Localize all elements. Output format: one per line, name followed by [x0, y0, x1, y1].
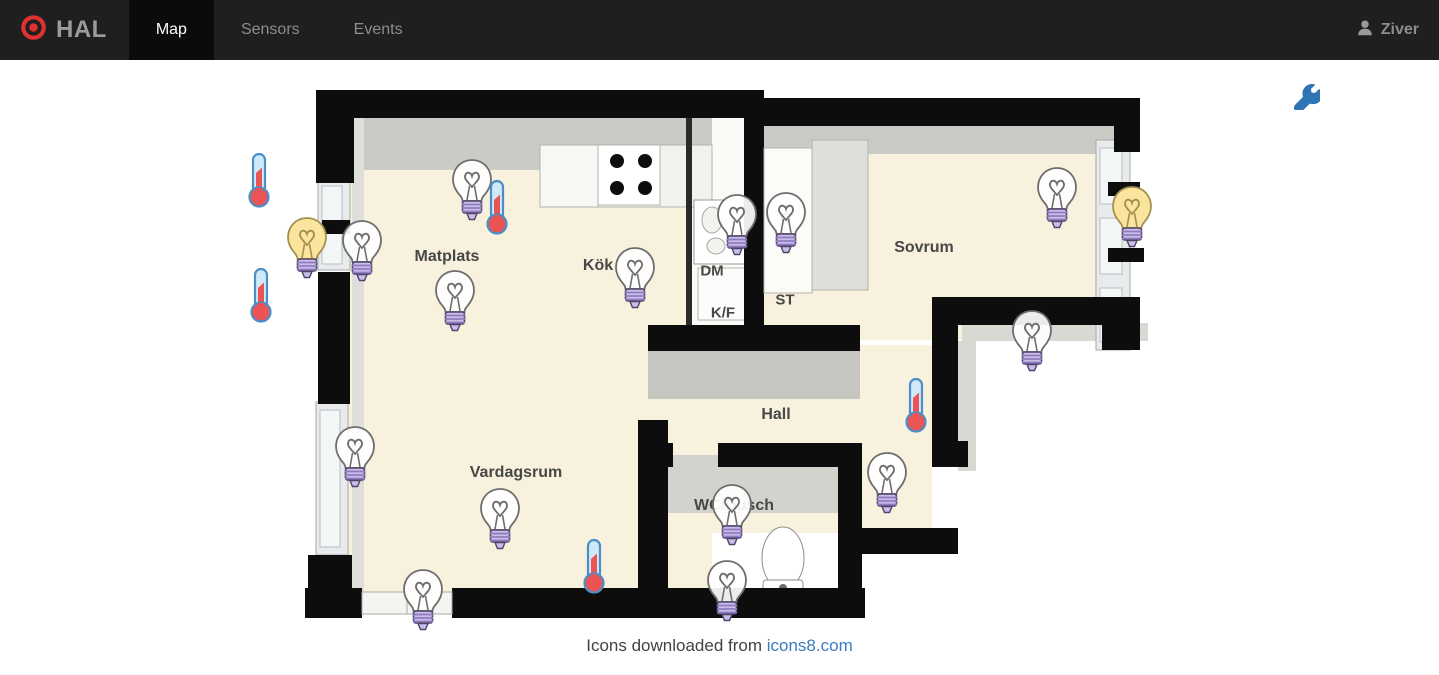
light-bulb-icon[interactable]: [711, 191, 763, 257]
light-bulb-icon[interactable]: [760, 189, 812, 255]
thermometer-icon[interactable]: [244, 152, 274, 208]
light-bulb-icon[interactable]: [1006, 307, 1058, 373]
room-label: Matplats: [415, 248, 480, 266]
room-label: Hall: [761, 406, 790, 424]
light-bulb-icon[interactable]: [609, 244, 661, 310]
room-label: Sovrum: [894, 239, 954, 257]
user-name: Ziver: [1381, 21, 1419, 39]
tab-events[interactable]: Events: [327, 0, 430, 60]
room-label: ST: [775, 292, 794, 309]
light-bulb-icon[interactable]: [397, 566, 449, 632]
main-nav: Map Sensors Events: [129, 0, 430, 60]
tab-map[interactable]: Map: [129, 0, 214, 60]
light-bulb-icon[interactable]: [701, 557, 753, 623]
room-label: DM: [700, 263, 723, 280]
wrench-icon: [1294, 98, 1320, 113]
tab-sensors[interactable]: Sensors: [214, 0, 327, 60]
thermometer-icon[interactable]: [901, 377, 931, 433]
light-bulb-icon[interactable]: [1106, 183, 1158, 249]
brand-name: HAL: [56, 16, 107, 44]
light-bulb-icon[interactable]: [861, 449, 913, 515]
light-bulb-icon[interactable]: [336, 217, 388, 283]
floor-map: MatplatsKökDMK/FGSTSovrumHallVardagsrumW…: [0, 60, 1439, 675]
light-bulb-icon[interactable]: [474, 485, 526, 551]
thermometer-icon[interactable]: [579, 538, 609, 594]
light-bulb-icon[interactable]: [1031, 164, 1083, 230]
thermometer-icon[interactable]: [482, 179, 512, 235]
map-page: MatplatsKökDMK/FGSTSovrumHallVardagsrumW…: [0, 60, 1439, 675]
light-bulb-icon[interactable]: [706, 481, 758, 547]
light-bulb-icon[interactable]: [429, 267, 481, 333]
icons8-link[interactable]: icons8.com: [767, 636, 853, 655]
user-icon: [1356, 19, 1374, 42]
app-logo[interactable]: HAL: [0, 0, 129, 60]
light-bulb-icon[interactable]: [281, 214, 333, 280]
room-label: K/F: [711, 305, 735, 322]
thermometer-icon[interactable]: [246, 267, 276, 323]
user-menu[interactable]: Ziver: [1356, 0, 1439, 60]
icons-credit: Icons downloaded from icons8.com: [0, 636, 1439, 656]
target-logo-icon: [20, 14, 47, 46]
navbar: HAL Map Sensors Events Ziver: [0, 0, 1439, 60]
map-settings-button[interactable]: [1290, 80, 1324, 114]
light-bulb-icon[interactable]: [329, 423, 381, 489]
room-label: Vardagsrum: [470, 464, 562, 482]
